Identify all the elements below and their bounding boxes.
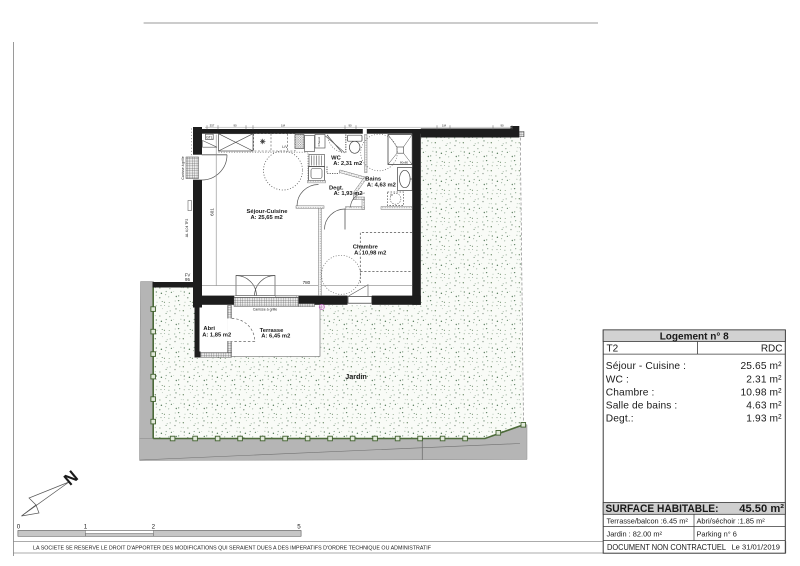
svg-text:Abri: Abri: [203, 326, 215, 332]
svg-text:DOCUMENT NON CONTRACTUEL: DOCUMENT NON CONTRACTUEL: [607, 543, 726, 552]
svg-text:A: 1,85 m2: A: 1,85 m2: [202, 332, 231, 338]
svg-text:Terrasse/balcon :6.45 m²: Terrasse/balcon :6.45 m²: [607, 517, 689, 526]
svg-text:95: 95: [185, 277, 190, 282]
svg-text:AL 4,04 TF2: AL 4,04 TF2: [185, 219, 189, 238]
svg-text:Degt.:: Degt.:: [606, 414, 634, 425]
svg-text:Jardin : 82.00 m²: Jardin : 82.00 m²: [607, 530, 663, 539]
svg-text:1: 1: [84, 523, 88, 530]
svg-text:A: 4,63 m2: A: 4,63 m2: [367, 182, 396, 188]
svg-text:Le 31/01/2019: Le 31/01/2019: [731, 543, 780, 552]
svg-text:Abri/séchoir :1.85 m²: Abri/séchoir :1.85 m²: [697, 517, 766, 526]
svg-text:90: 90: [233, 124, 237, 128]
svg-text:WC :: WC :: [606, 374, 629, 385]
svg-text:Logement n° 8: Logement n° 8: [660, 331, 729, 342]
svg-text:LA SOCIETE SE RESERVE LE DROIT: LA SOCIETE SE RESERVE LE DROIT D'APPORTE…: [33, 546, 431, 552]
svg-text:357: 357: [210, 124, 215, 128]
svg-text:L/V: L/V: [282, 145, 288, 149]
svg-text:80x80: 80x80: [400, 160, 409, 164]
svg-text:1M: 1M: [442, 124, 447, 128]
svg-text:45.50 m²: 45.50 m²: [739, 503, 784, 515]
svg-text:A: 2,31 m2: A: 2,31 m2: [333, 161, 362, 167]
svg-text:RDC: RDC: [761, 343, 783, 354]
svg-text:A: 10,98 m2: A: 10,98 m2: [354, 250, 386, 256]
svg-text:Canisse à grille: Canisse à grille: [253, 308, 278, 312]
svg-text:2.31 m²: 2.31 m²: [746, 374, 782, 385]
svg-text:T2: T2: [607, 343, 619, 354]
svg-text:LL: LL: [390, 192, 394, 196]
svg-text:0: 0: [17, 523, 21, 530]
svg-text:Canisse à grille: Canisse à grille: [181, 156, 185, 179]
svg-text:Salle de bains :: Salle de bains :: [606, 401, 678, 412]
svg-text:601: 601: [210, 208, 215, 216]
svg-text:Chambre :: Chambre :: [606, 387, 655, 398]
svg-text:780: 780: [303, 280, 311, 285]
svg-text:A: 25,65 m2: A: 25,65 m2: [250, 215, 282, 221]
svg-text:Jardin: Jardin: [345, 372, 367, 381]
svg-text:Parking n° 6: Parking n° 6: [697, 530, 737, 539]
svg-text:1.93 m²: 1.93 m²: [746, 414, 782, 425]
svg-text:90: 90: [348, 124, 352, 128]
svg-text:5: 5: [297, 523, 301, 530]
svg-text:SURFACE HABITABLE:: SURFACE HABITABLE:: [606, 503, 719, 515]
svg-text:10.98 m²: 10.98 m²: [741, 387, 783, 398]
svg-text:A: 6,45 m2: A: 6,45 m2: [261, 334, 290, 340]
svg-text:2: 2: [152, 523, 156, 530]
svg-text:90: 90: [500, 124, 504, 128]
svg-text:Chaud.: Chaud.: [317, 137, 321, 147]
svg-text:A: 1,93 m2: A: 1,93 m2: [334, 191, 363, 197]
svg-text:Séjour - Cuisine :: Séjour - Cuisine :: [606, 361, 686, 372]
svg-text:GTL: GTL: [206, 135, 213, 139]
svg-text:25.65 m²: 25.65 m²: [741, 361, 783, 372]
svg-text:4.63 m²: 4.63 m²: [746, 401, 782, 412]
svg-text:1M: 1M: [281, 124, 286, 128]
